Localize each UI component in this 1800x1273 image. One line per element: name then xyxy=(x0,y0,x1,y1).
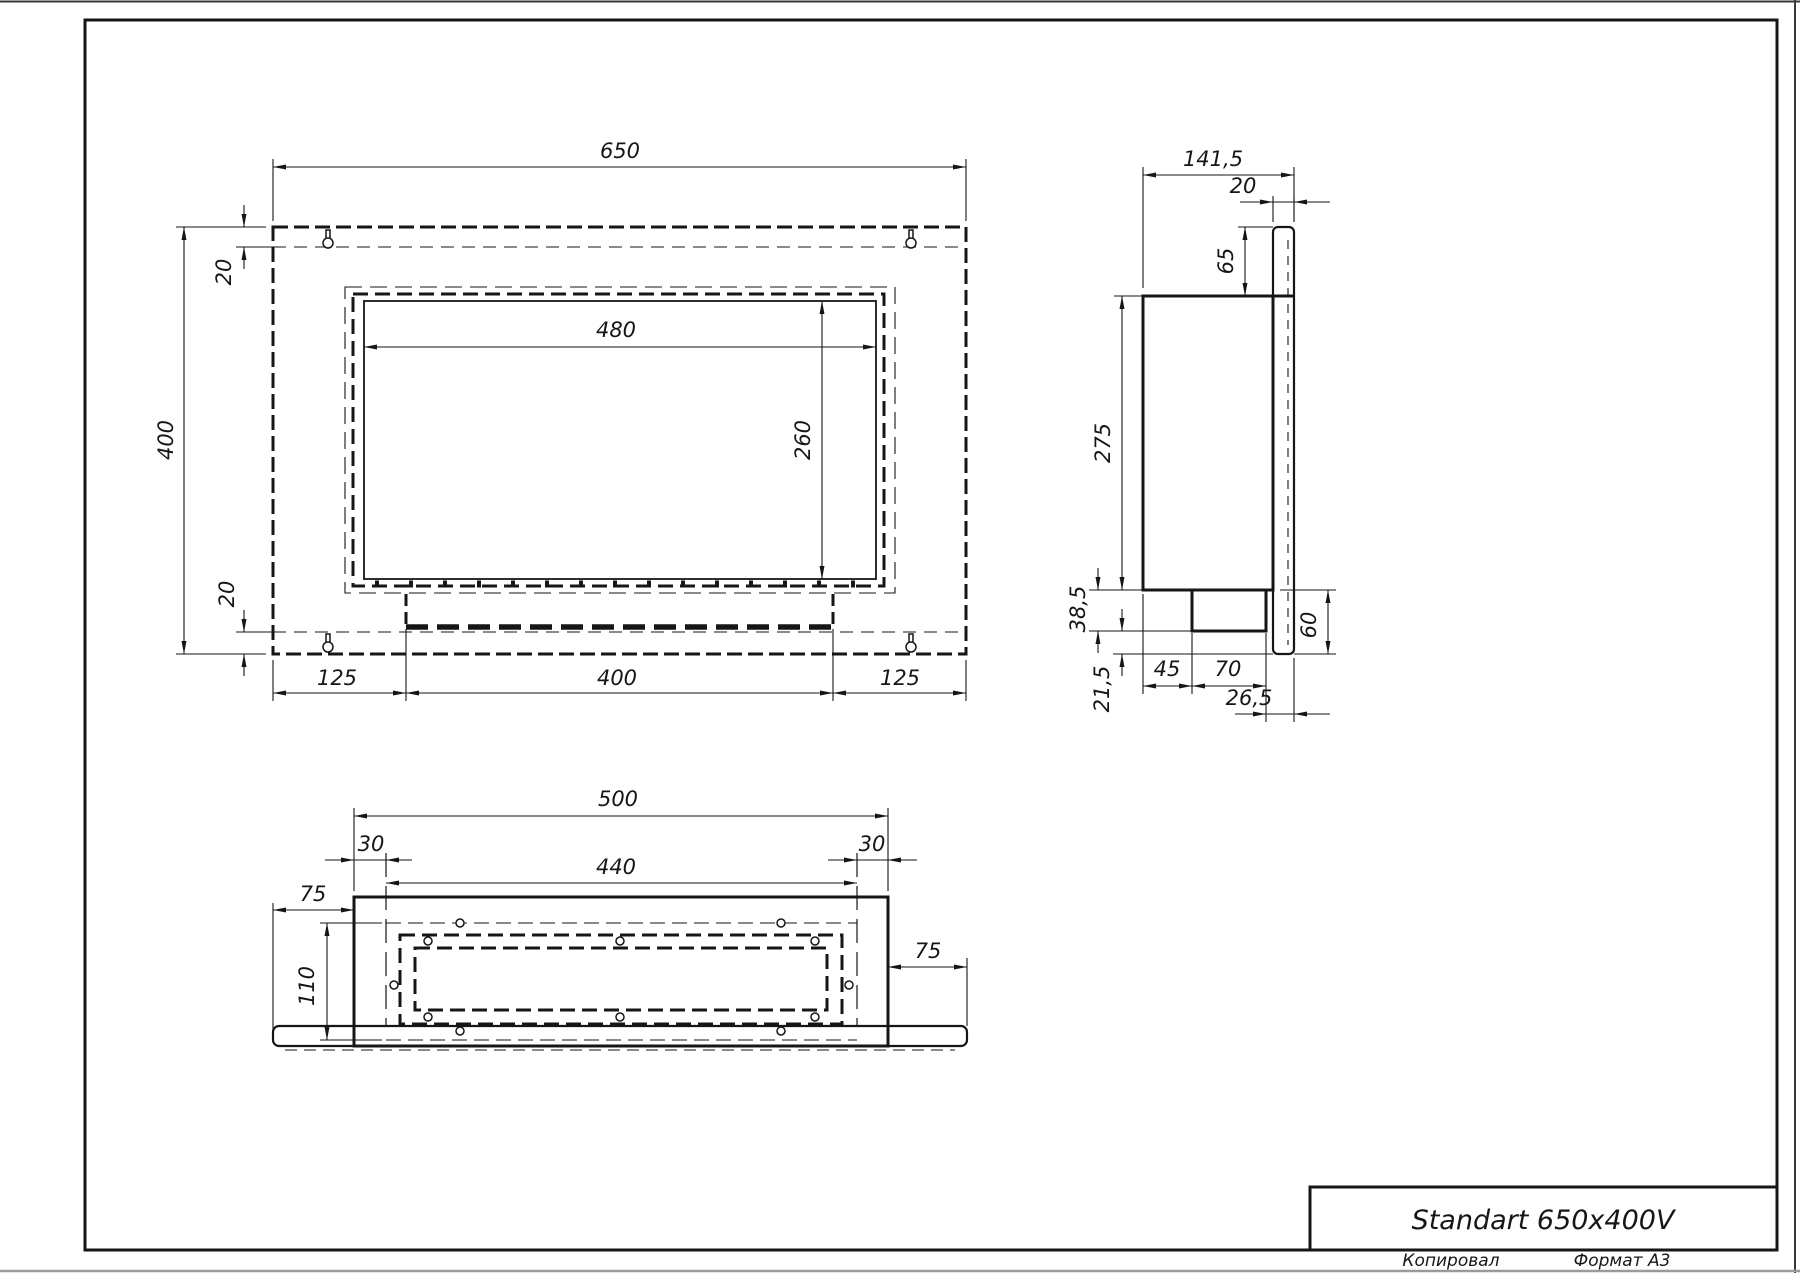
dim-30-left-label: 30 xyxy=(358,832,385,856)
front-panel-outline xyxy=(273,227,966,654)
footer-format-label: Формат А3 xyxy=(1574,1251,1671,1271)
keyhole-icon xyxy=(906,634,916,652)
drawing-title: Standart 650x400V xyxy=(1412,1205,1677,1236)
dim-125-left-label: 125 xyxy=(317,666,357,690)
dim-480: 480 xyxy=(364,318,876,347)
dim-30-right-label: 30 xyxy=(859,832,886,856)
bottom-panel-band xyxy=(273,1026,967,1046)
dim-21-5-label: 21,5 xyxy=(1090,666,1114,713)
keyhole-icon xyxy=(323,230,333,248)
dim-500-label: 500 xyxy=(598,787,638,811)
dim-480-label: 480 xyxy=(596,318,636,342)
dim-26-5-label: 26,5 xyxy=(1226,686,1273,710)
bottom-view: 500 30 30 440 75 7 xyxy=(273,787,967,1050)
dim-30-left: 30 xyxy=(325,832,412,860)
dim-20-bottom-label: 20 xyxy=(215,581,239,608)
dim-38-5: 38,5 xyxy=(1066,568,1192,653)
dim-141-5-label: 141,5 xyxy=(1183,147,1243,171)
dim-row-bottom: 125 400 125 xyxy=(273,629,966,701)
dim-110-label: 110 xyxy=(295,966,319,1006)
dim-20-top-label: 20 xyxy=(212,259,236,286)
dim-38-5-label: 38,5 xyxy=(1066,586,1090,633)
dim-75-left: 75 xyxy=(273,882,354,1032)
dim-260-label: 260 xyxy=(791,420,815,460)
dim-260: 260 xyxy=(791,301,822,579)
dim-110: 110 xyxy=(295,923,382,1040)
dim-20-panel: 20 xyxy=(1230,174,1330,222)
title-block: Standart 650x400V Копировал Формат А3 xyxy=(1310,1187,1777,1271)
dim-20-bottom: 20 xyxy=(215,581,273,676)
dim-30-right: 30 xyxy=(828,832,917,860)
dim-60-label: 60 xyxy=(1297,612,1321,639)
drawing-frame xyxy=(85,20,1777,1250)
dim-400-height-label: 400 xyxy=(154,420,178,460)
footer-copied-label: Копировал xyxy=(1402,1251,1499,1271)
dim-75-left-label: 75 xyxy=(300,882,327,906)
dim-65: 65 xyxy=(1214,227,1273,296)
dim-45-label: 45 xyxy=(1154,657,1181,681)
dim-125-right-label: 125 xyxy=(880,666,920,690)
drawing-sheet: 650 400 20 20 480 xyxy=(0,0,1800,1273)
keyhole-icon xyxy=(906,230,916,248)
dim-400-height: 400 xyxy=(154,227,266,654)
dim-75-right: 75 xyxy=(888,939,967,1026)
dim-20-top: 20 xyxy=(212,205,273,285)
dim-275: 275 xyxy=(1089,296,1143,590)
keyhole-icon xyxy=(323,634,333,652)
side-view: 141,5 20 65 275 38,5 xyxy=(1066,147,1336,722)
side-box-outline xyxy=(1143,296,1273,590)
drawing-canvas: 650 400 20 20 480 xyxy=(0,0,1800,1273)
side-burner-outline xyxy=(1192,590,1266,631)
dim-400-burner-label: 400 xyxy=(597,666,637,690)
bottom-burner-inner xyxy=(415,948,827,1010)
dim-65-label: 65 xyxy=(1214,248,1238,275)
dim-440-label: 440 xyxy=(596,855,636,879)
dim-275-label: 275 xyxy=(1091,423,1115,463)
dim-75-right-label: 75 xyxy=(915,939,942,963)
dim-20-panel-label: 20 xyxy=(1230,174,1257,198)
front-view: 650 400 20 20 480 xyxy=(154,139,966,701)
dim-650: 650 xyxy=(273,139,966,221)
dim-440: 440 xyxy=(386,855,857,883)
dim-70-label: 70 xyxy=(1215,657,1242,681)
dim-650-label: 650 xyxy=(600,139,640,163)
